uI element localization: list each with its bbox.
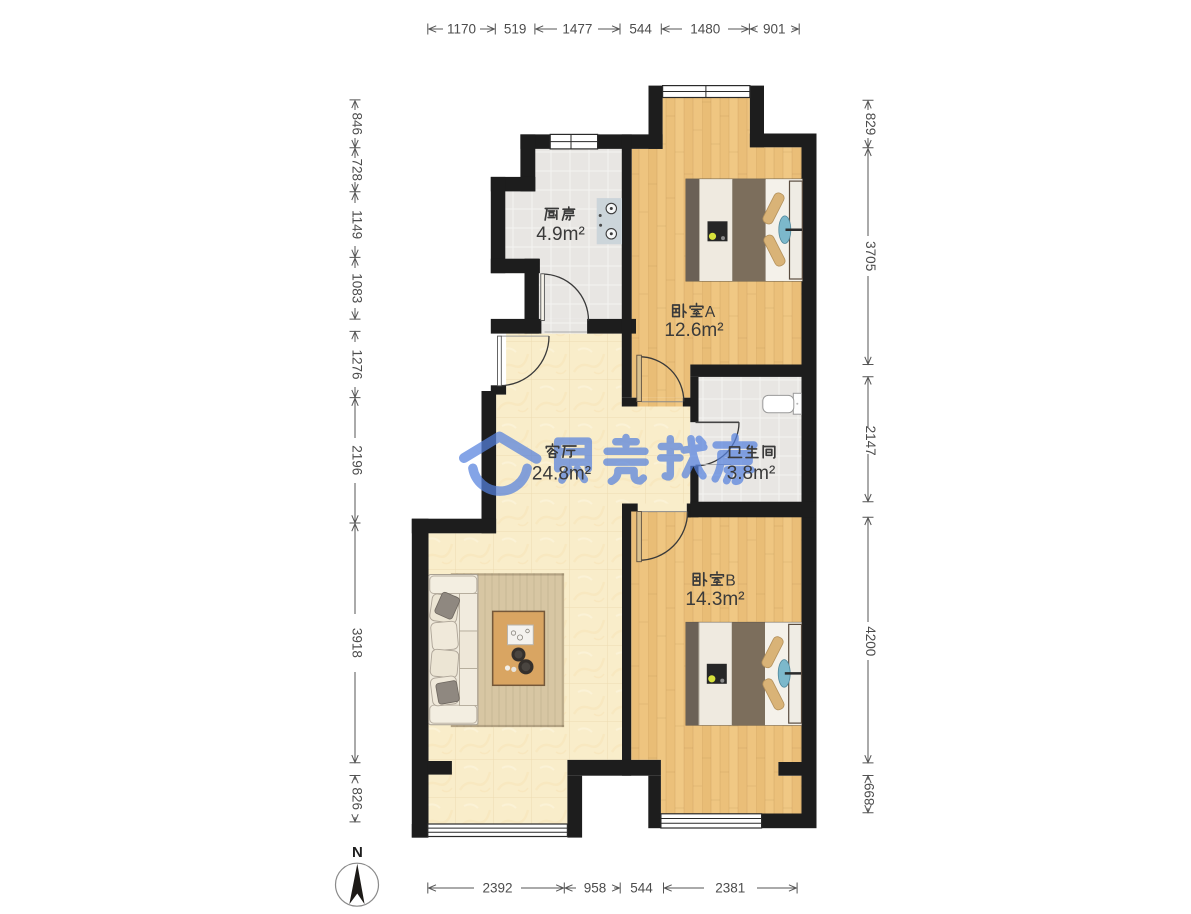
- svg-text:24.8m²: 24.8m²: [532, 464, 591, 485]
- svg-text:1170: 1170: [447, 22, 476, 37]
- svg-text:1276: 1276: [349, 349, 364, 379]
- svg-text:N: N: [352, 844, 363, 861]
- svg-text:958: 958: [584, 881, 607, 896]
- svg-text:2147: 2147: [863, 426, 878, 456]
- svg-text:826: 826: [349, 787, 364, 810]
- svg-text:4.9m²: 4.9m²: [536, 224, 585, 245]
- svg-text:3918: 3918: [349, 628, 364, 658]
- svg-text:12.6m²: 12.6m²: [664, 320, 723, 341]
- svg-text:899: 899: [862, 783, 877, 806]
- svg-text:2196: 2196: [349, 445, 364, 475]
- svg-text:1149: 1149: [349, 210, 364, 239]
- svg-text:14.3m²: 14.3m²: [685, 589, 744, 610]
- svg-text:1477: 1477: [562, 22, 592, 37]
- svg-text:829: 829: [863, 113, 878, 136]
- svg-text:2392: 2392: [482, 881, 512, 896]
- svg-text:B: B: [725, 573, 735, 590]
- svg-text:3.8m²: 3.8m²: [727, 463, 776, 484]
- svg-text:544: 544: [629, 22, 652, 37]
- svg-text:2381: 2381: [715, 881, 745, 896]
- svg-text:1083: 1083: [349, 273, 364, 303]
- svg-text:4200: 4200: [863, 626, 878, 656]
- svg-text:1480: 1480: [690, 22, 720, 37]
- svg-text:3705: 3705: [863, 241, 878, 271]
- svg-text:544: 544: [630, 881, 653, 896]
- svg-text:901: 901: [763, 22, 786, 37]
- svg-text:846: 846: [349, 113, 364, 136]
- svg-text:728: 728: [349, 159, 364, 182]
- svg-text:A: A: [705, 304, 716, 321]
- svg-text:519: 519: [504, 22, 527, 37]
